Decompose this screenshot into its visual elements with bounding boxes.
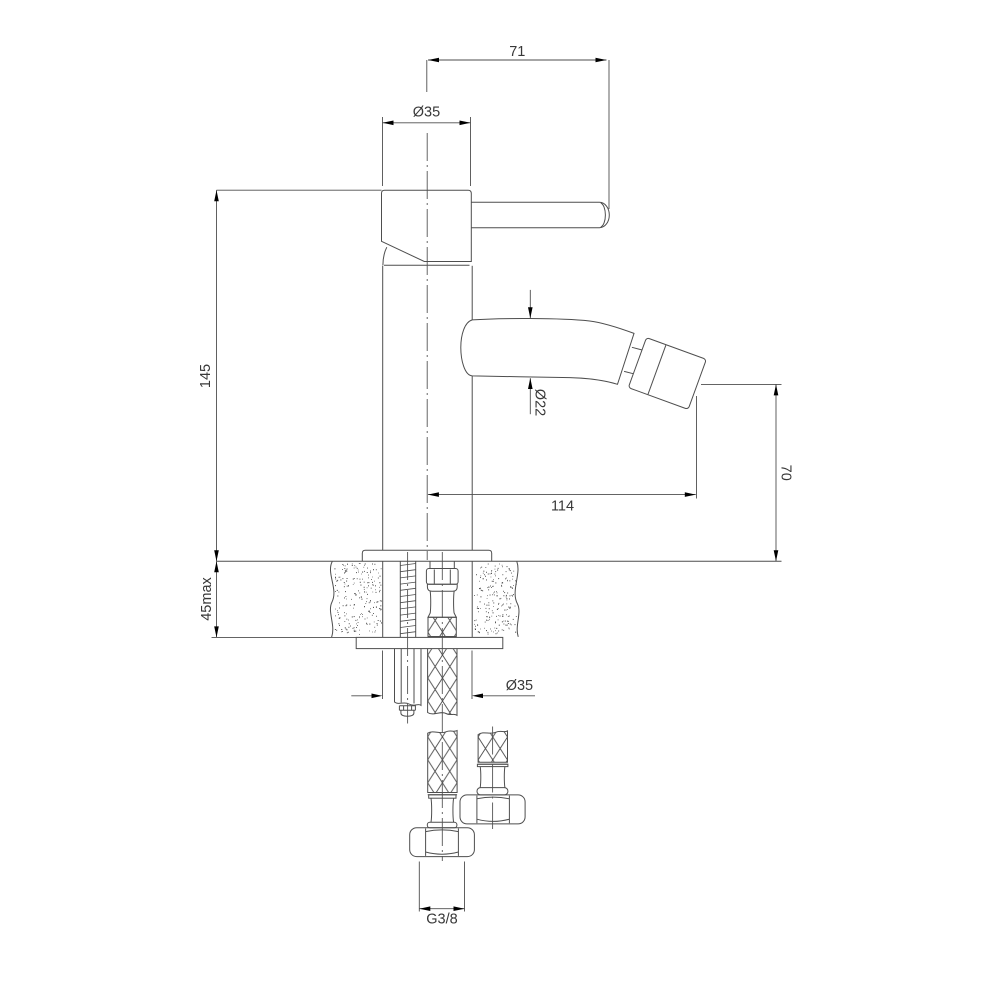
svg-text:Ø35: Ø35: [506, 678, 533, 694]
svg-text:145: 145: [198, 364, 214, 388]
svg-text:45max: 45max: [199, 576, 215, 620]
svg-text:Ø22: Ø22: [531, 389, 547, 416]
svg-text:114: 114: [551, 499, 574, 515]
svg-text:Ø35: Ø35: [413, 105, 440, 121]
svg-text:G3/8: G3/8: [426, 912, 457, 928]
svg-text:70: 70: [777, 465, 793, 481]
svg-text:71: 71: [509, 44, 525, 60]
